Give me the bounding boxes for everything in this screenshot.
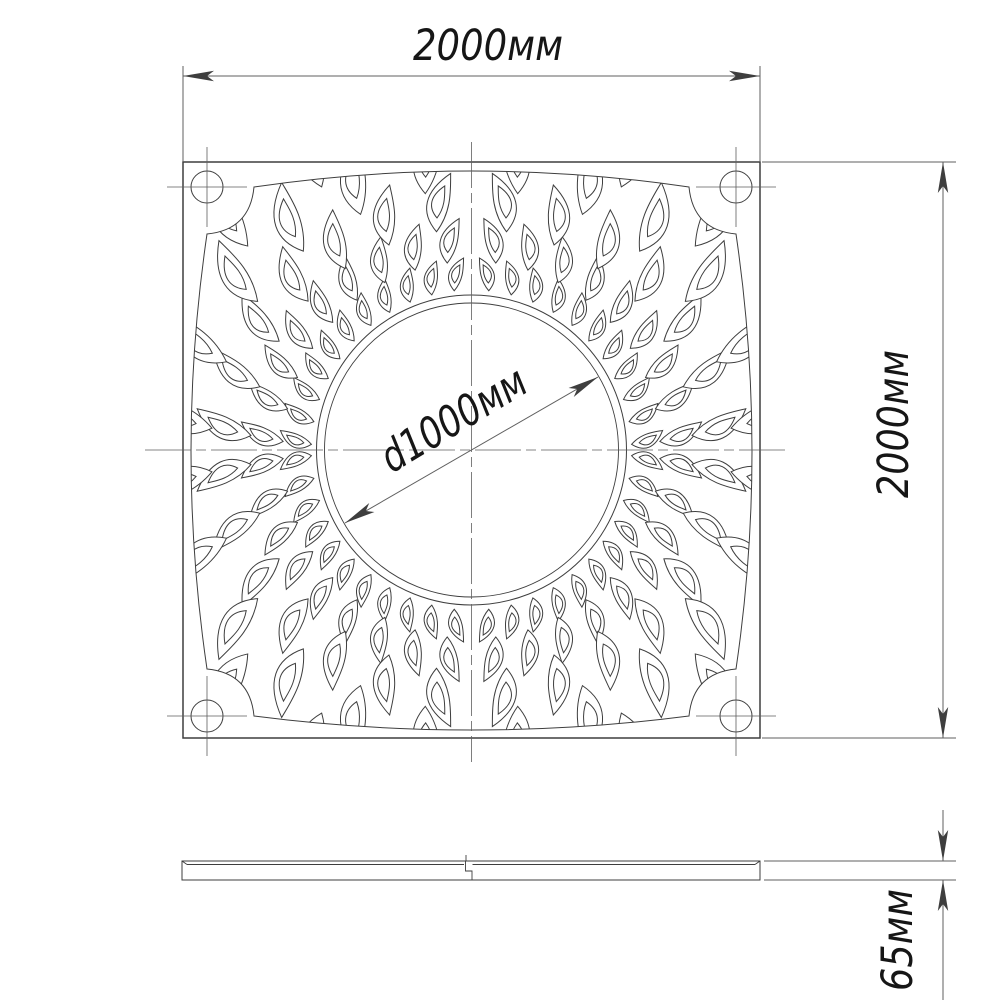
- leaf-cutout: [422, 605, 439, 640]
- leaf-cutout: [313, 328, 343, 364]
- leaf-cutout: [291, 105, 329, 190]
- leaf-cutout: [302, 572, 337, 621]
- leaf-cutout: [550, 586, 568, 622]
- leaf-cutout: [689, 169, 749, 255]
- center-joint-step: [466, 855, 473, 880]
- top-width-label: 2000мм: [413, 21, 563, 71]
- leaf-cutout: [298, 515, 330, 549]
- leaf-cutout: [614, 105, 652, 190]
- leaf-cutout: [331, 555, 357, 591]
- leaf-cutout: [368, 616, 389, 663]
- arrow-lower-left-icon: [342, 503, 374, 528]
- leaf-cutout: [503, 605, 520, 640]
- leaf-cutout: [600, 536, 630, 572]
- leaf-cutout: [264, 643, 310, 719]
- leaf-cutout: [606, 572, 641, 621]
- leaf-cutout: [548, 185, 570, 245]
- leaf-cutout: [612, 351, 644, 385]
- arrow-upper-right-icon: [569, 372, 601, 397]
- leaf-cutout: [634, 643, 680, 719]
- leaf-cutout: [375, 278, 393, 314]
- leaf-cutout: [621, 375, 655, 407]
- leaf-cutout: [627, 308, 667, 355]
- leaf-cutout: [400, 268, 413, 302]
- leaf-cutout: [287, 493, 321, 525]
- dimension-top-width: 2000мм: [183, 21, 760, 162]
- leaf-cutout: [503, 260, 520, 295]
- leaf-cutout: [548, 655, 570, 715]
- leaf-cutout: [375, 586, 393, 622]
- leaf-cutout: [203, 589, 263, 663]
- extension-lines: [764, 861, 956, 880]
- leaf-cutout: [268, 592, 313, 655]
- leaf-cutout: [612, 515, 644, 549]
- leaf-cutout: [339, 685, 367, 758]
- leaf-cutout: [550, 278, 568, 314]
- leaf-cutout: [606, 279, 641, 328]
- leaf-cutout: [634, 181, 680, 257]
- side-view: [182, 855, 760, 880]
- leaf-cutout: [313, 536, 343, 572]
- tree-grate-technical-drawing: 2000мм 2000мм d1000мм 65мм: [0, 0, 1000, 1000]
- leaf-cutout: [403, 223, 424, 270]
- leaf-cutout: [422, 260, 439, 295]
- inner-diameter-label: d1000мм: [371, 357, 536, 483]
- leaf-cutout: [276, 544, 316, 591]
- leaf-cutout: [403, 630, 424, 677]
- leaf-cutout: [287, 375, 321, 407]
- leaf-cutout: [680, 237, 740, 311]
- leaf-cutout: [317, 209, 350, 272]
- leaf-cutout: [194, 169, 254, 255]
- leaf-cutout: [203, 237, 263, 311]
- leaf-cutout: [600, 328, 630, 364]
- leaf-cutout: [339, 142, 367, 215]
- leaf-cutout: [298, 351, 330, 385]
- leaf-cutout: [520, 223, 541, 270]
- leaf-cutout: [368, 236, 389, 283]
- leaf-cutout: [302, 279, 337, 328]
- leaf-cutout: [586, 555, 612, 591]
- leaf-cutout: [576, 685, 604, 758]
- leaf-cutout: [520, 630, 541, 677]
- leaf-cutout: [621, 493, 655, 525]
- leaf-cutout: [530, 268, 543, 302]
- leaf-cutout: [630, 592, 675, 655]
- edge-chamfers: [182, 861, 760, 865]
- leaf-cutout: [554, 236, 575, 283]
- leaf-cutout: [530, 598, 543, 632]
- side-height-label: 2000мм: [869, 350, 919, 498]
- dimension-thickness: 65мм: [764, 810, 956, 1000]
- leaf-cutout: [268, 244, 313, 307]
- thickness-label: 65мм: [873, 889, 923, 991]
- leaf-cutout: [592, 628, 625, 691]
- leaf-cutout: [276, 308, 316, 355]
- side-profile-outline: [182, 861, 760, 880]
- leaf-cutout: [400, 598, 413, 632]
- leaf-cutout: [586, 309, 612, 345]
- leaf-cutout: [317, 628, 350, 691]
- leaf-cutout: [680, 589, 740, 663]
- leaf-cutout: [554, 616, 575, 663]
- leaf-cutout: [592, 209, 625, 272]
- leaf-cutout: [630, 244, 675, 307]
- leaf-cutout: [373, 185, 395, 245]
- leaf-cutout: [264, 181, 310, 257]
- leaf-cutout: [576, 142, 604, 215]
- leaf-cutout: [331, 309, 357, 345]
- leaf-cutout: [373, 655, 395, 715]
- leaf-cutout: [627, 544, 667, 591]
